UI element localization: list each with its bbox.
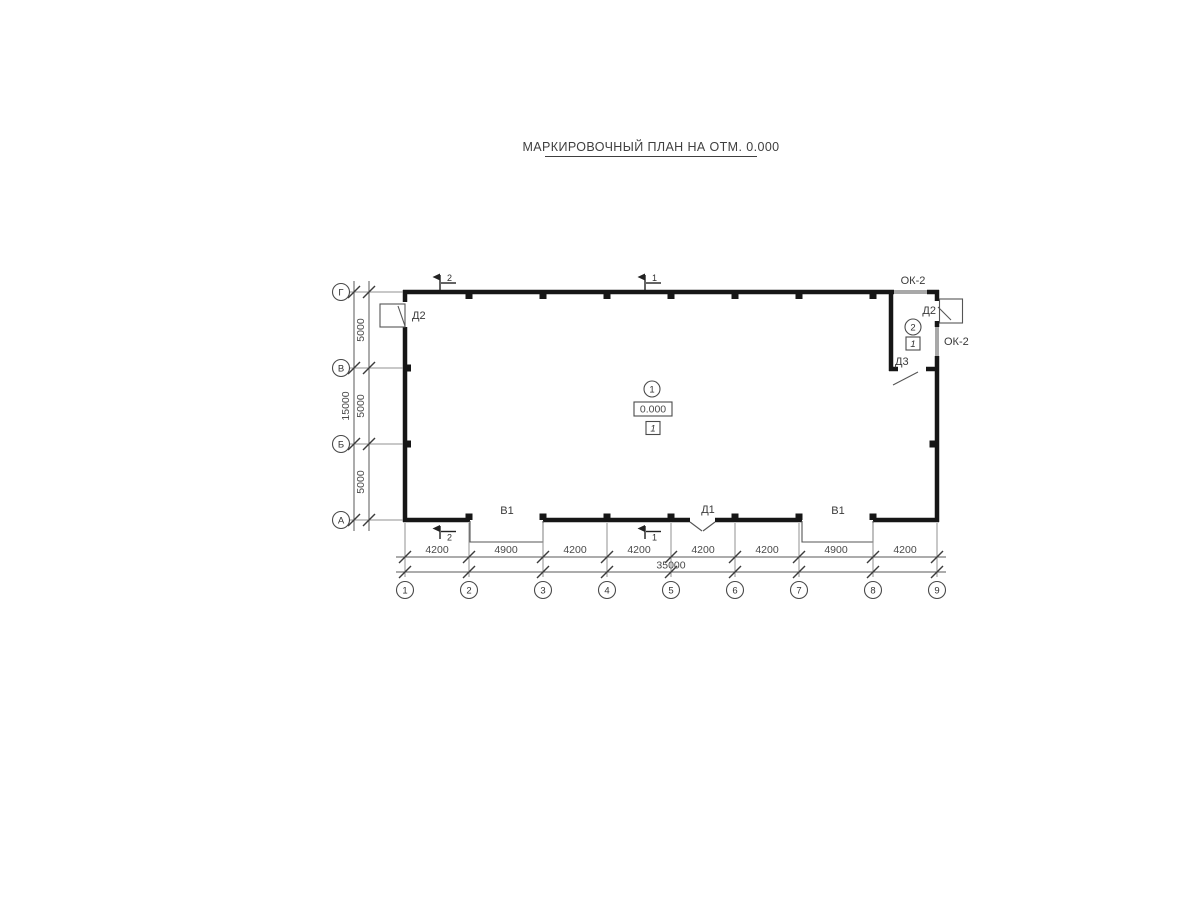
dim-value: 4200	[563, 544, 587, 556]
gate-b1-left-label: В1	[500, 505, 513, 517]
axis-col-3: 3	[535, 582, 552, 599]
axis-col-4: 4	[599, 582, 616, 599]
door-d2-left-label: Д2	[412, 310, 426, 322]
drawing-header: МАРКИРОВОЧНЫЙ ПЛАН НА ОТМ. 0.000	[522, 139, 779, 157]
section-mark-2-top: 2	[433, 273, 457, 290]
svg-text:4: 4	[604, 586, 609, 597]
walls	[403, 290, 939, 522]
dim-value: 4900	[494, 544, 518, 556]
gate-b1-left-pocket	[470, 521, 543, 542]
svg-text:3: 3	[540, 586, 545, 597]
svg-text:5: 5	[668, 586, 673, 597]
room1-floor-type: 1	[650, 424, 655, 435]
section-1-top-label: 1	[652, 273, 657, 283]
dim-value: 4200	[691, 544, 715, 556]
axis-col-7: 7	[791, 582, 808, 599]
dim-value: 4200	[627, 544, 651, 556]
door-d1: Д1	[690, 504, 715, 531]
room1-elevation: 0.000	[640, 404, 666, 416]
axis-row-v: В	[333, 360, 350, 377]
door-d2-right: Д2	[922, 299, 962, 323]
columns	[404, 293, 937, 521]
section-1-bottom-label: 1	[652, 533, 657, 543]
section-2-top-label: 2	[447, 273, 452, 283]
door-d3-label: Д3	[895, 356, 909, 368]
section-2-bottom-label: 2	[447, 533, 452, 543]
dim-value: 4200	[425, 544, 449, 556]
axis-row-g: Г	[333, 284, 350, 301]
page-title: МАРКИРОВОЧНЫЙ ПЛАН НА ОТМ. 0.000	[522, 139, 779, 154]
room1-number: 1	[649, 385, 654, 396]
door-d2-right-label: Д2	[922, 305, 936, 317]
door-d1-label: Д1	[701, 504, 715, 516]
svg-text:Г: Г	[338, 288, 343, 299]
floor-plan-drawing: МАРКИРОВОЧНЫЙ ПЛАН НА ОТМ. 0.000	[0, 0, 1200, 900]
svg-text:1: 1	[402, 586, 407, 597]
window-ok2-top-label: ОК-2	[901, 275, 926, 287]
axis-col-2: 2	[461, 582, 478, 599]
axis-col-8: 8	[865, 582, 882, 599]
axis-col-6: 6	[727, 582, 744, 599]
dim-total-bottom: 35000	[656, 560, 685, 572]
axis-col-9: 9	[929, 582, 946, 599]
door-d2-left: Д2	[380, 304, 426, 327]
dim-value-left: 5000	[355, 318, 367, 342]
room2-number: 2	[910, 323, 915, 334]
axis-row-a: А	[333, 512, 350, 529]
svg-text:2: 2	[466, 586, 471, 597]
dim-value-left: 5000	[355, 470, 367, 494]
section-mark-1-top: 1	[638, 273, 662, 290]
svg-text:9: 9	[934, 586, 939, 597]
bottom-dimensions: 4200 4900 4200 4200 4200 4200 4900 4200 …	[396, 523, 946, 578]
column-axis-bubbles: 1 2 3 4 5 6 7 8 9	[397, 582, 946, 599]
section-mark-2-bottom: 2	[433, 525, 457, 543]
door-d1-leaf-right	[703, 522, 715, 531]
axis-row-b: Б	[333, 436, 350, 453]
room2-floor-type: 1	[910, 339, 915, 350]
dim-value: 4900	[824, 544, 848, 556]
door-d3-leaf	[893, 372, 918, 385]
svg-text:6: 6	[732, 586, 737, 597]
dim-total-left: 15000	[340, 391, 352, 420]
gate-b1-right-pocket	[802, 521, 873, 542]
section-mark-1-bottom: 1	[638, 525, 662, 543]
svg-text:7: 7	[796, 586, 801, 597]
svg-text:Б: Б	[338, 440, 344, 451]
gate-b1-right-label: В1	[831, 505, 844, 517]
room1-annotations: 1 0.000 1	[634, 381, 672, 435]
plan-svg: МАРКИРОВОЧНЫЙ ПЛАН НА ОТМ. 0.000	[0, 0, 1200, 900]
dim-value: 4200	[755, 544, 779, 556]
left-dimensions: 5000 5000 5000 15000	[340, 281, 403, 531]
axis-col-1: 1	[397, 582, 414, 599]
room2-annotations: 2 1	[905, 319, 921, 350]
gate-b1-right: В1	[802, 505, 873, 542]
svg-text:А: А	[338, 516, 345, 527]
dim-value: 4200	[893, 544, 917, 556]
gate-b1-left: В1	[470, 505, 543, 542]
window-ok2-right-label: ОК-2	[944, 336, 969, 348]
door-d1-leaf-left	[690, 522, 702, 531]
svg-text:В: В	[338, 364, 344, 375]
door-d2-left-leaf	[398, 306, 405, 326]
axis-col-5: 5	[663, 582, 680, 599]
dim-value-left: 5000	[355, 394, 367, 418]
svg-text:8: 8	[870, 586, 875, 597]
